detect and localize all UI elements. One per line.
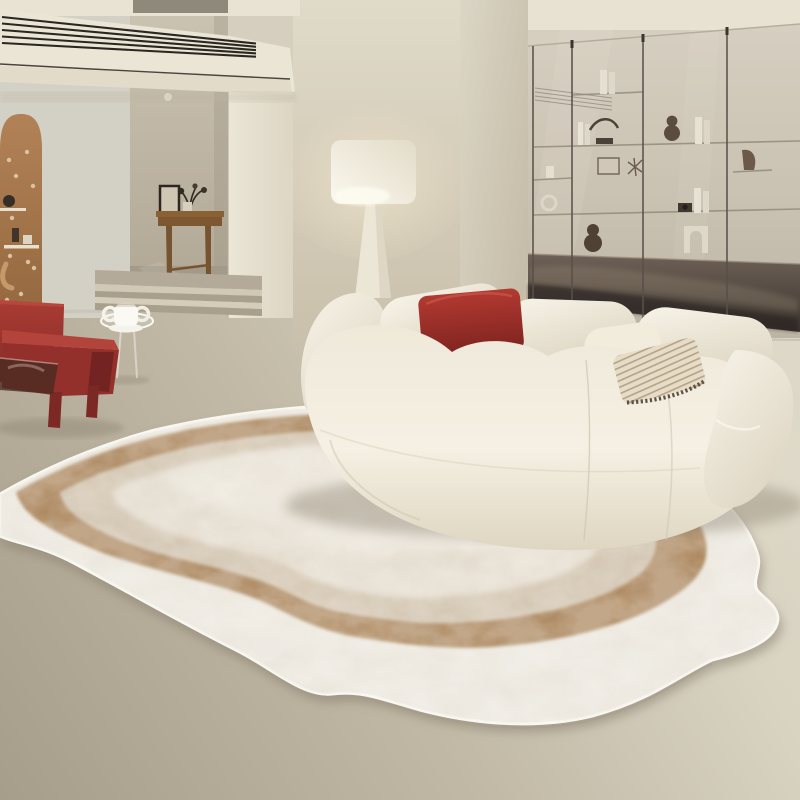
arch-pegboard — [0, 114, 42, 314]
table-apron — [158, 217, 222, 226]
wall-clock — [3, 195, 15, 207]
beam-shadow — [0, 92, 296, 102]
chair-shadow — [0, 418, 124, 438]
plant-bloom — [178, 188, 184, 194]
glass-partition — [518, 0, 800, 340]
chair-leg-1 — [48, 392, 62, 428]
scene-canvas — [0, 0, 800, 800]
chair-leg-2 — [86, 386, 99, 418]
plant-bloom-3 — [192, 183, 197, 188]
peg-shelf-2 — [4, 245, 39, 249]
table-top — [156, 211, 224, 217]
white-pot — [23, 235, 32, 244]
lamp-shade-glow — [334, 187, 390, 205]
small-vase — [183, 202, 192, 212]
plant-bloom-2 — [201, 187, 207, 193]
table-leg-right — [205, 226, 211, 274]
mug-body — [114, 305, 138, 326]
mezzanine-void — [133, 0, 228, 13]
ceiling-strip — [528, 0, 800, 30]
living-room-photo — [0, 0, 800, 800]
picture-frame — [160, 186, 179, 213]
sofa — [285, 279, 800, 550]
glass-slab-table — [0, 358, 58, 394]
peg-shelf-1 — [0, 208, 26, 211]
dark-vase — [12, 228, 19, 242]
